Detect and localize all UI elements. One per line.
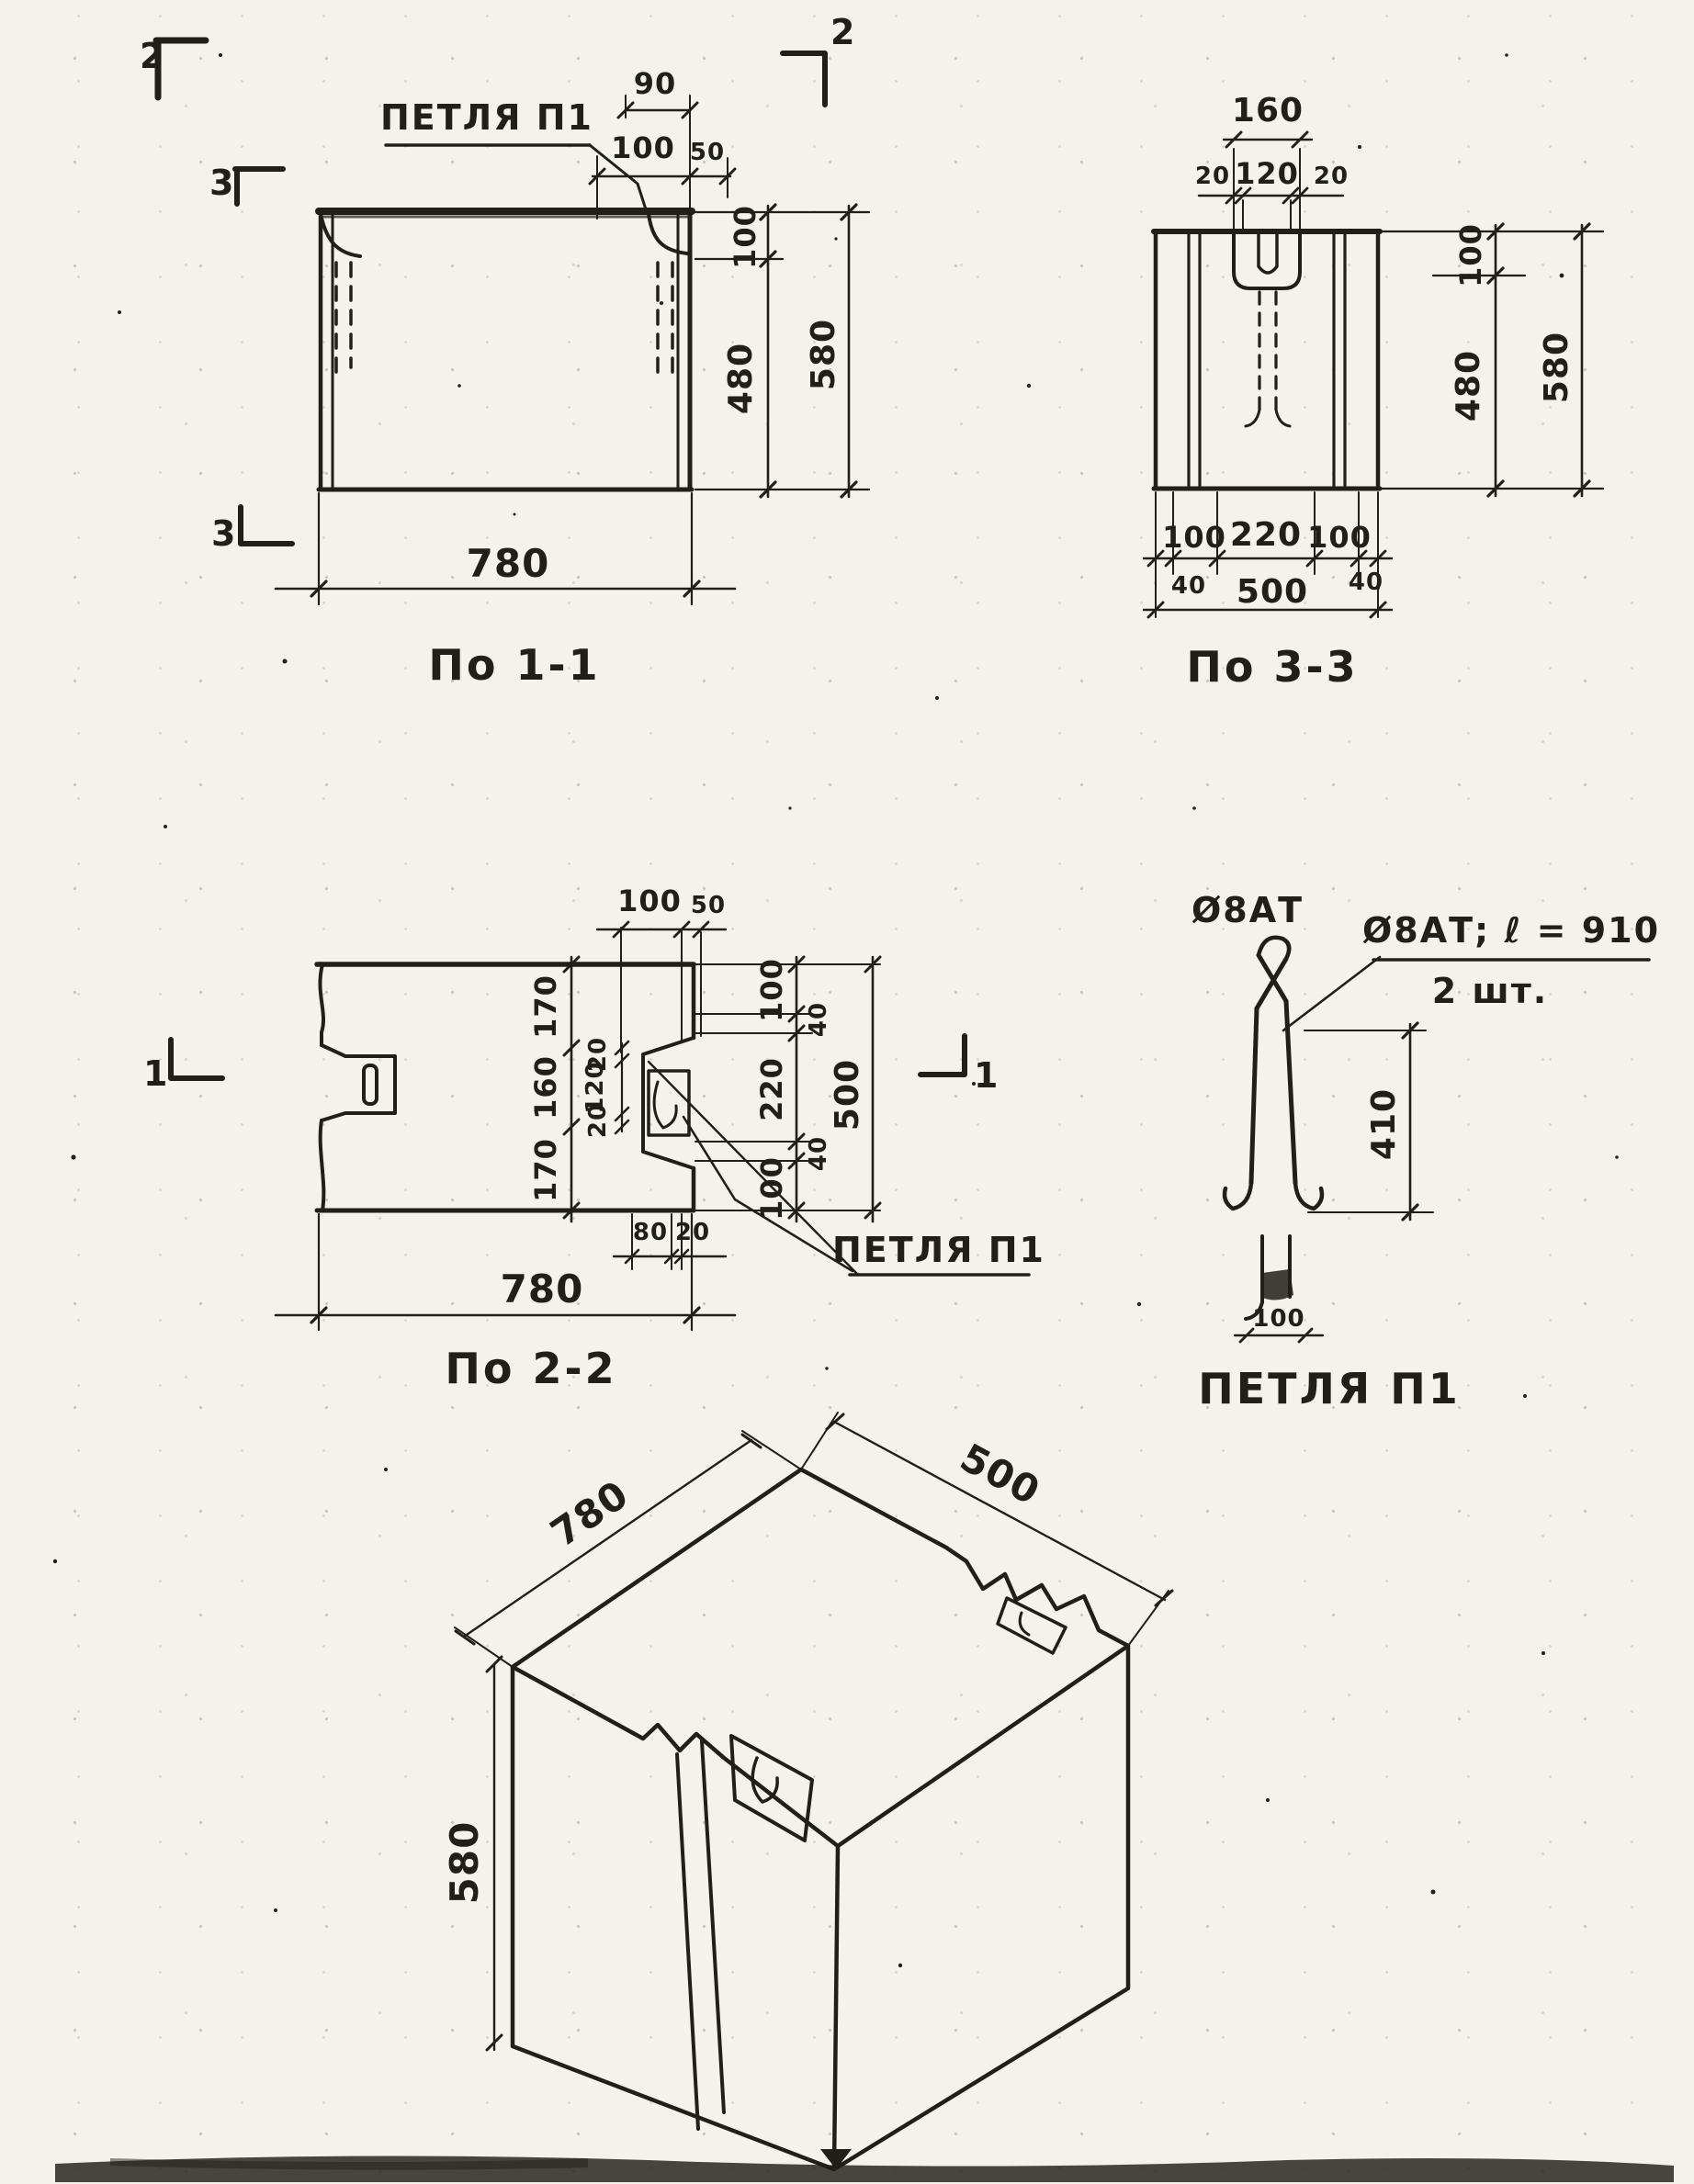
dim-s22-500: 500 [829,1059,866,1131]
dim-s22-80: 80 [633,1219,668,1246]
dim-s22-160: 160 [528,1055,563,1120]
dim-s22-100t: 100 [617,884,682,918]
dim-loop-100: 100 [1252,1305,1304,1333]
dim-s22-170b: 170 [528,1138,563,1202]
dim-s11-100t: 100 [611,130,675,165]
dim-s22-40b: 40 [805,1136,832,1171]
section-mark-1-left: 1 [143,1040,222,1094]
dim-s22-50t: 50 [691,892,726,919]
dim-s11-50t: 50 [690,139,725,166]
section-mark-1-right: 1 [920,1036,999,1096]
caption-s33: По 3-3 [1186,642,1358,692]
svg-text:1: 1 [143,1053,168,1094]
dim-s33-100br: 100 [1307,520,1372,555]
view-section-3-3: 160 20 120 20 100 480 580 100 220 100 40… [1144,92,1603,692]
dim-s22-100ra: 100 [754,958,789,1022]
dim-s33-160: 160 [1232,92,1304,129]
dim-loop-410: 410 [1365,1088,1403,1160]
dim-iso-580: 580 [442,1821,487,1905]
dim-s33-40a: 40 [1171,572,1206,600]
drawing-canvas: ПЕТЛЯ П1 90 100 50 100 480 580 780 По 1-… [0,0,1694,2184]
section-mark-3-upper: 3 [209,163,283,204]
loop-note-line2: 2 шт. [1432,971,1549,1011]
caption-loop: ПЕТЛЯ П1 [1198,1364,1460,1413]
scanned-drawing-page: ПЕТЛЯ П1 90 100 50 100 480 580 780 По 1-… [0,0,1694,2184]
svg-text:1: 1 [974,1055,999,1096]
caption-s22: По 2-2 [445,1344,616,1393]
dim-s33-20a: 20 [1195,163,1230,190]
dim-s22-20b: 20 [584,1103,612,1138]
dim-s33-480: 480 [1450,350,1487,422]
section-mark-2-top-right: 2 [783,12,855,105]
view-section-1-1: ПЕТЛЯ П1 90 100 50 100 480 580 780 По 1-… [140,12,869,690]
view-loop-detail: Ø8АТ Ø8АТ; ℓ = 910 2 шт. 410 100 ПЕТЛЯ П… [1191,890,1660,1413]
dim-s33-580: 580 [1538,332,1575,403]
section-mark-2-top-left: 2 [140,36,206,97]
loop-bar-mark: Ø8АТ [1191,890,1304,930]
loop-note-line1: Ø8АТ; ℓ = 910 [1362,910,1660,951]
dim-s11-480: 480 [722,343,760,414]
dim-s33-120: 120 [1235,156,1299,191]
view-section-2-2: 100 50 170 160 170 20 120 20 100 40 220 … [143,884,1045,1393]
dim-s33-40b: 40 [1349,569,1383,596]
dim-s33-100r: 100 [1453,223,1488,287]
svg-text:3: 3 [209,163,234,203]
dim-s22-780: 780 [501,1266,584,1312]
caption-s11: По 1-1 [428,640,600,690]
dim-s11-780: 780 [467,541,550,586]
svg-text:3: 3 [211,513,236,554]
view-isometric: 780 500 580 [442,1413,1172,2169]
section-mark-3-lower: 3 [211,507,292,554]
dim-s22-40a: 40 [805,1002,832,1037]
dim-s33-100bl: 100 [1162,520,1226,555]
dim-s33-20b: 20 [1314,163,1349,190]
dim-iso-780: 780 [543,1471,637,1556]
dim-s11-100r: 100 [728,205,762,269]
dim-s22-170a: 170 [528,974,563,1039]
dim-iso-500: 500 [953,1435,1047,1514]
dim-s11-90: 90 [634,66,677,101]
dim-s33-500: 500 [1237,573,1308,611]
svg-text:2: 2 [830,12,855,52]
loop-label-s22: ПЕТЛЯ П1 [832,1230,1045,1270]
dim-s22-220: 220 [754,1057,789,1121]
dim-s11-580: 580 [805,319,842,390]
dim-s33-220: 220 [1230,516,1302,554]
loop-label-s11: ПЕТЛЯ П1 [380,97,593,138]
